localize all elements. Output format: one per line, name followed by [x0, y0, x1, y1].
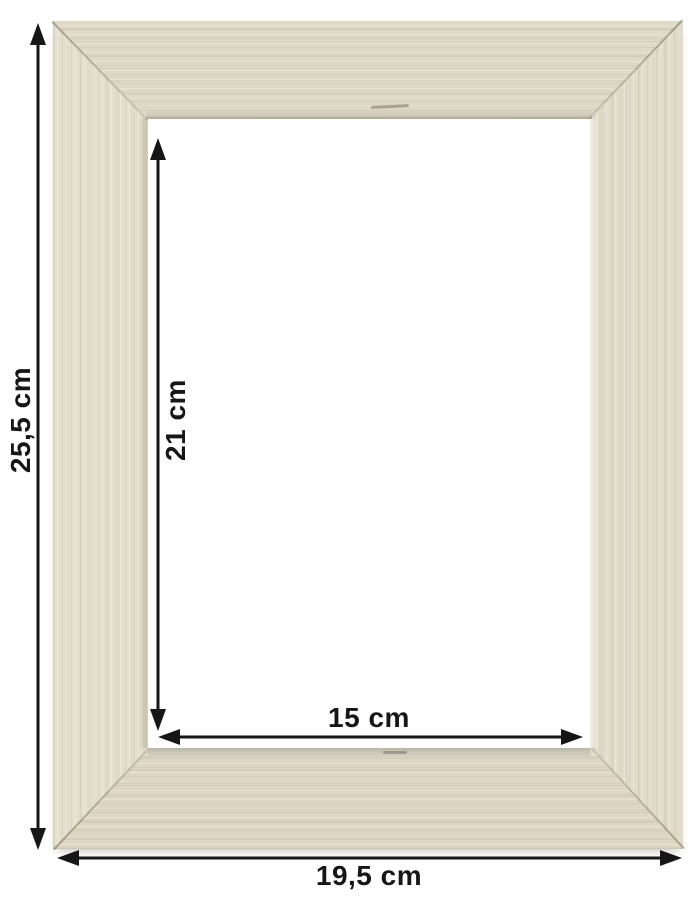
inner-width-label: 15 cm [328, 704, 410, 732]
arrow-line [174, 736, 567, 739]
outer-width-label: 19,5 cm [316, 862, 422, 890]
wood-knot-mark [383, 751, 407, 754]
opening-left-lip-shadow [138, 119, 148, 748]
opening-top-lip-shadow [146, 109, 592, 119]
opening-bottom-lip [148, 748, 590, 757]
arrowhead-right-icon [660, 850, 682, 866]
inner-height-label: 21 cm [162, 379, 190, 461]
product-dimension-image: 25,5 cm 21 cm 15 cm 19,5 cm [0, 0, 700, 909]
opening-right-lip-highlight [590, 119, 599, 748]
arrowhead-down-icon [30, 828, 46, 850]
outer-height-label: 25,5 cm [7, 367, 35, 473]
arrow-line [37, 39, 40, 834]
arrowhead-right-icon [561, 729, 583, 745]
frame-opening [148, 119, 590, 748]
